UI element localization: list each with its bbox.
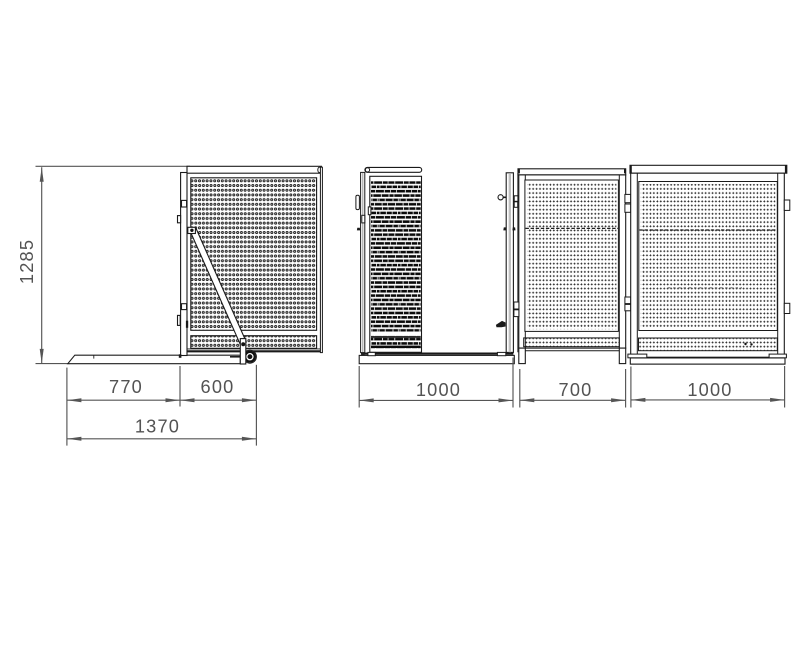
svg-text:1000: 1000: [687, 380, 732, 400]
svg-text:700: 700: [559, 380, 593, 400]
svg-text:1000: 1000: [416, 380, 461, 400]
svg-text:1370: 1370: [135, 416, 180, 436]
svg-text:770: 770: [109, 377, 143, 397]
svg-text:1285: 1285: [17, 239, 37, 284]
svg-text:600: 600: [201, 377, 235, 397]
